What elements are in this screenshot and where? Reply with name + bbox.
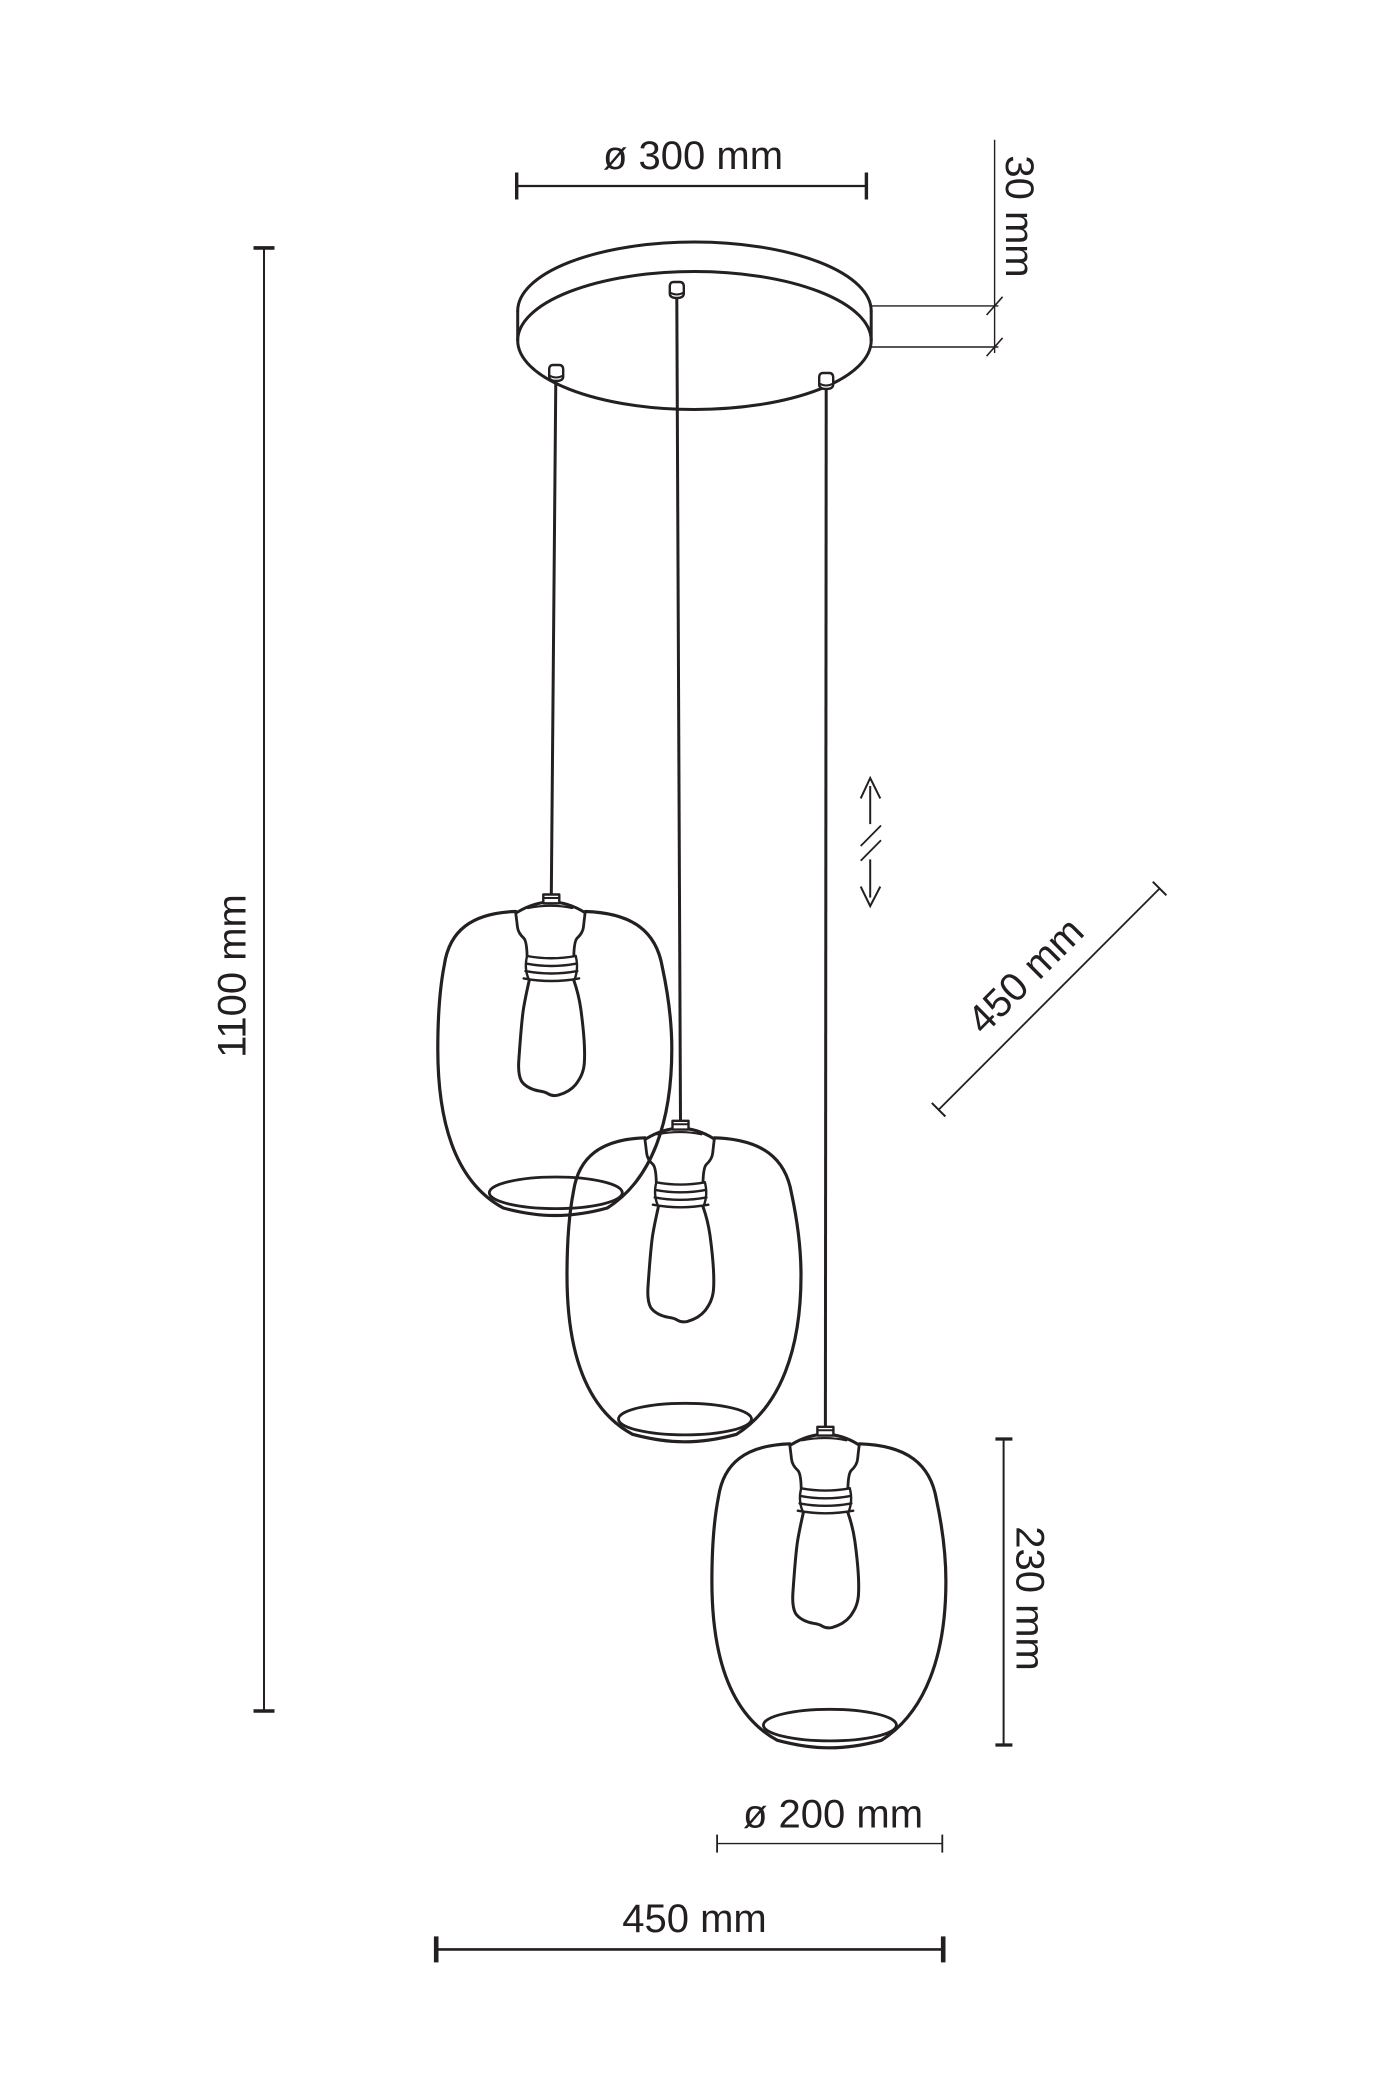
svg-text:450 mm: 450 mm xyxy=(622,1897,767,1941)
svg-text:30 mm: 30 mm xyxy=(997,155,1041,277)
svg-text:1100 mm: 1100 mm xyxy=(210,894,254,1058)
svg-text:ø 200 mm: ø 200 mm xyxy=(743,1793,923,1837)
svg-text:ø 300 mm: ø 300 mm xyxy=(603,134,783,178)
svg-text:230 mm: 230 mm xyxy=(1008,1526,1052,1671)
